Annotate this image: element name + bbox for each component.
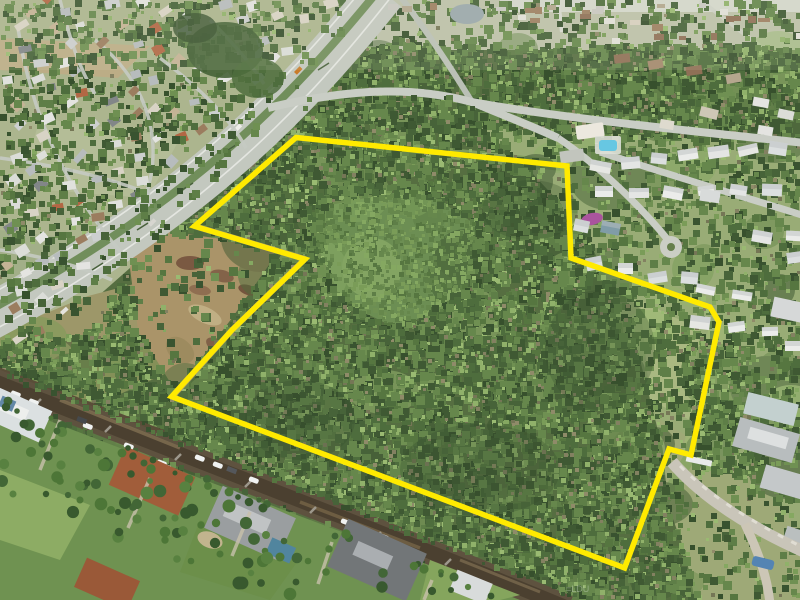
svg-text:=LDU: =LDU [566,584,589,594]
